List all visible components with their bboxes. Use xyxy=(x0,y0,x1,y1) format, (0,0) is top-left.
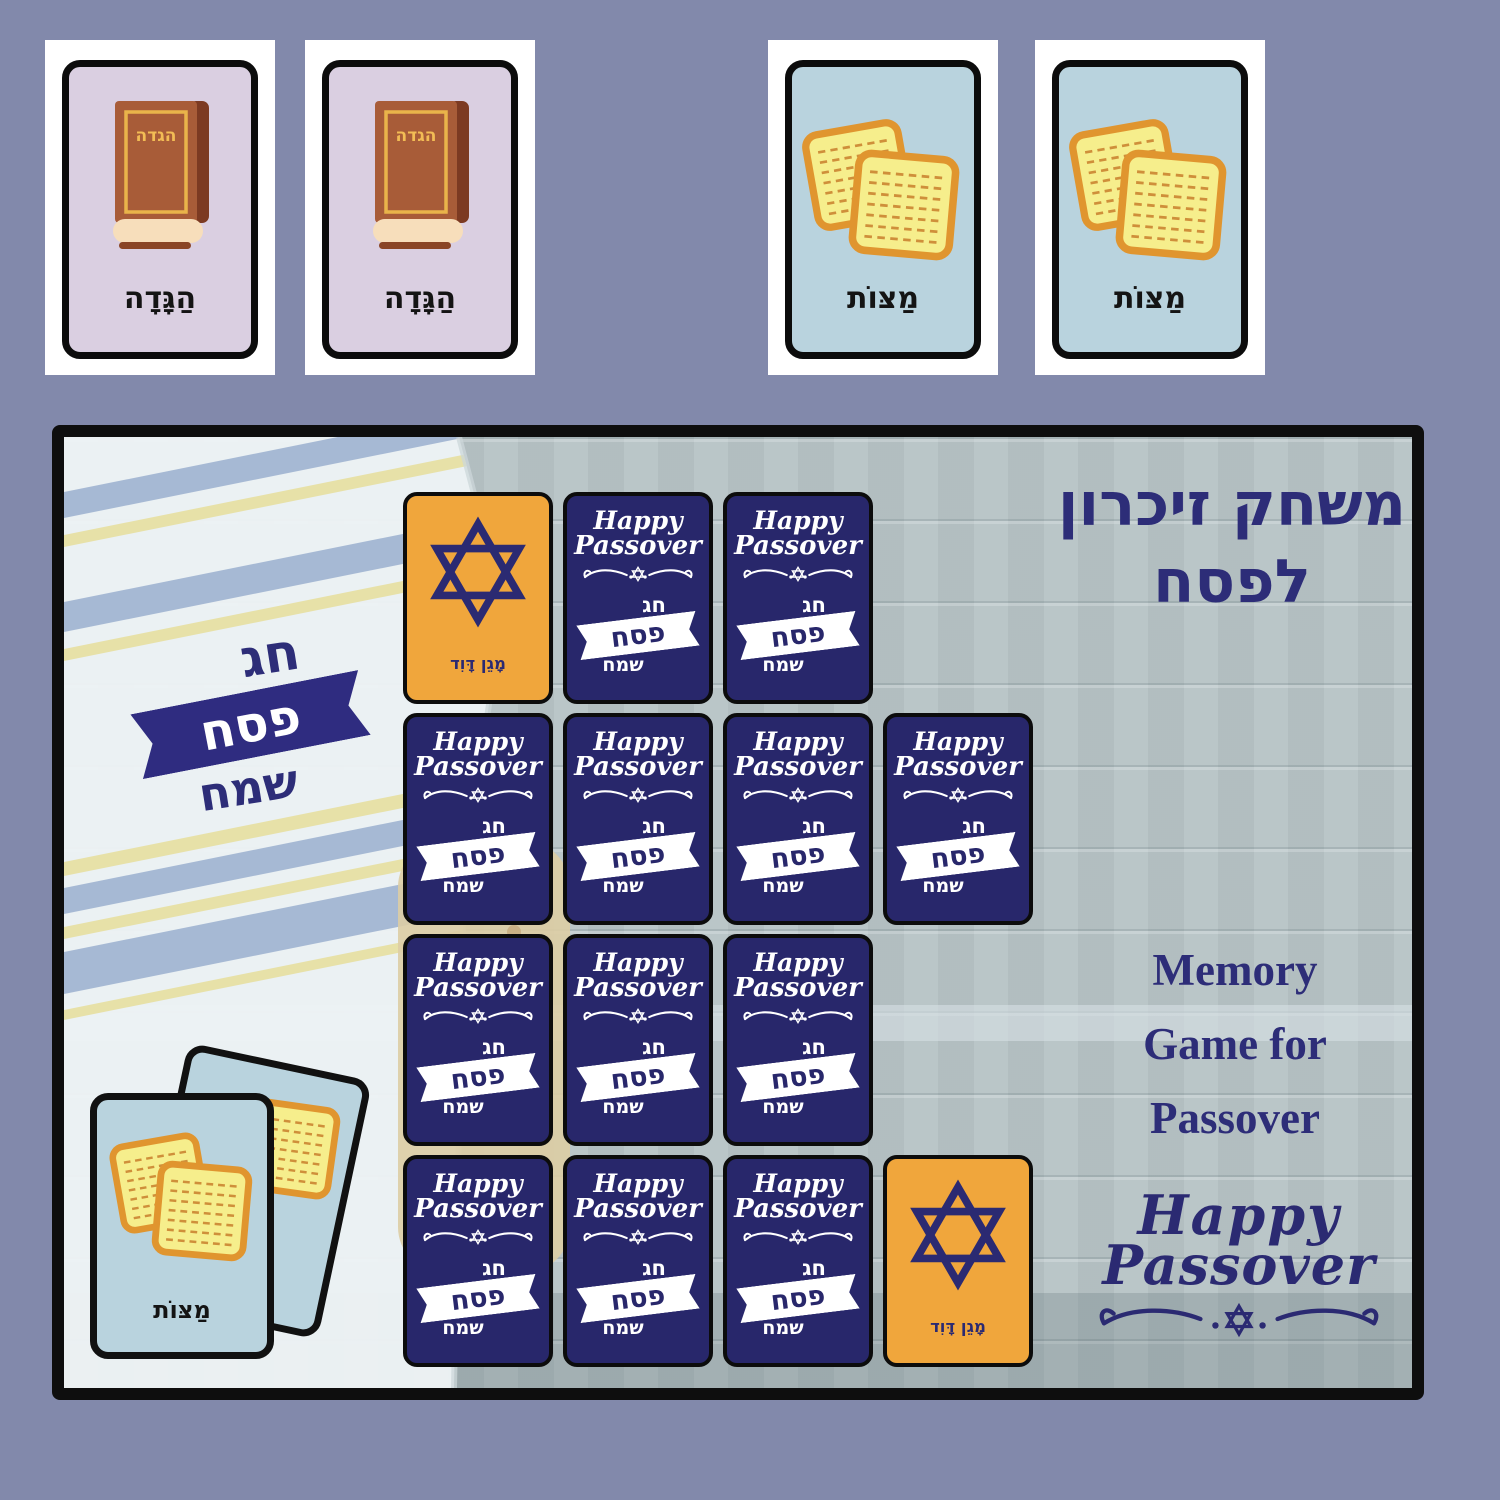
empty-grid-slot xyxy=(883,492,1033,704)
card-back-ribbon: פסח xyxy=(416,1053,539,1102)
card-back-sameach-text: שמח xyxy=(442,1317,483,1339)
memory-card-face-down[interactable]: Happy Passover חג פסח שמח xyxy=(723,492,873,704)
stack-card-label: מַצּוֹת xyxy=(97,1296,267,1324)
card-back-ribbon: פסח xyxy=(736,611,859,660)
memory-card-face-down[interactable]: Happy Passover חג פסח שמח xyxy=(403,713,553,925)
memory-card-magen-david[interactable]: מָגֵן דָּוִד xyxy=(403,492,553,704)
memory-card-face-down[interactable]: Happy Passover חג פסח שמח xyxy=(723,934,873,1146)
flourish-star-icon xyxy=(582,563,694,585)
logo-passover-text: Passover xyxy=(1074,1233,1404,1297)
card-back-chag-text: חג xyxy=(482,1035,506,1059)
card-back-happy-text: Happy xyxy=(913,729,1002,754)
card-back-passover-text: Passover xyxy=(734,754,862,781)
card-back-sameach-text: שמח xyxy=(762,1317,803,1339)
card-back-pesach-text: פסח xyxy=(449,1059,507,1096)
card-back-chag-text: חג xyxy=(482,1256,506,1280)
card-back-sameach-text: שמח xyxy=(762,654,803,676)
card-back-happy-text: Happy xyxy=(753,729,842,754)
card-back-passover-text: Passover xyxy=(894,754,1022,781)
card-back-ribbon: פסח xyxy=(576,611,699,660)
matzah-icons xyxy=(1059,121,1241,281)
flourish-star-icon xyxy=(742,1226,854,1248)
card-back-passover-text: Passover xyxy=(734,1196,862,1223)
card-back-ribbon: פסח xyxy=(896,832,1019,881)
card-back-pesach-text: פסח xyxy=(769,617,827,654)
flourish-star-icon xyxy=(422,1005,534,1027)
card-back-pesach-text: פסח xyxy=(609,838,667,875)
flourish-star-icon xyxy=(582,1226,694,1248)
haggadah-book-icon: הגדה xyxy=(104,93,216,253)
memory-game-text: Memory Game for Passover xyxy=(1060,933,1410,1155)
card-back-sameach-text: שמח xyxy=(602,1317,643,1339)
card-back-pesach-text: פסח xyxy=(609,1280,667,1317)
matzot-card-label: מַצּוֹת xyxy=(1059,281,1241,316)
card-back-chag-text: חג xyxy=(642,1035,666,1059)
flourish-star-icon xyxy=(422,1226,534,1248)
card-back-passover-text: Passover xyxy=(414,1196,542,1223)
memory-card-face-down[interactable]: Happy Passover חג פסח שמח xyxy=(563,934,713,1146)
flourish-star-icon xyxy=(742,563,854,585)
board-title-hebrew: משחק זיכרון לפסח xyxy=(1057,467,1407,621)
magen-david-label: מָגֵן דָּוִד xyxy=(450,654,506,673)
card-back-happy-text: Happy xyxy=(433,729,522,754)
card-back-happy-text: Happy xyxy=(753,508,842,533)
card-back-happy-text: Happy xyxy=(433,950,522,975)
matzah-icon xyxy=(149,1158,255,1264)
card-back-ribbon: פסח xyxy=(416,832,539,881)
card-back-ribbon: פסח xyxy=(576,1274,699,1323)
book-cover-text: הגדה xyxy=(396,126,437,146)
card-back-sameach-text: שמח xyxy=(602,654,643,676)
matzot-card-1[interactable]: מַצּוֹת xyxy=(785,60,981,359)
card-back-chag-text: חג xyxy=(642,1256,666,1280)
flourish-star-icon xyxy=(582,784,694,806)
card-back-pesach-text: פסח xyxy=(449,1280,507,1317)
flourish-star-icon xyxy=(1089,1297,1389,1341)
card-back-ribbon: פסח xyxy=(736,1274,859,1323)
card-back-pesach-text: פסח xyxy=(609,617,667,654)
book-cover-text: הגדה xyxy=(136,126,177,146)
stack-card-front[interactable]: מַצּוֹת xyxy=(90,1093,274,1359)
card-back-happy-text: Happy xyxy=(433,1171,522,1196)
empty-grid-slot xyxy=(883,934,1033,1146)
print-sheet-4: מַצּוֹת xyxy=(1035,40,1265,375)
memory-card-face-down[interactable]: Happy Passover חג פסח שמח xyxy=(883,713,1033,925)
print-sheet-1: הגדה הַגָּדָה xyxy=(45,40,275,375)
memory-card-face-down[interactable]: Happy Passover חג פסח שמח xyxy=(723,713,873,925)
flourish-star-icon xyxy=(582,1005,694,1027)
badge-pesach-text: פסח xyxy=(195,686,305,762)
card-back-ribbon: פסח xyxy=(736,832,859,881)
card-back-happy-text: Happy xyxy=(753,1171,842,1196)
card-back-chag-text: חג xyxy=(802,593,826,617)
card-back-chag-text: חג xyxy=(962,814,986,838)
card-back-happy-text: Happy xyxy=(593,508,682,533)
title-line-2: לפסח xyxy=(1057,544,1407,621)
card-back-passover-text: Passover xyxy=(574,754,702,781)
memory-card-face-down[interactable]: Happy Passover חג פסח שמח xyxy=(563,1155,713,1367)
card-back-happy-text: Happy xyxy=(753,950,842,975)
happy-passover-logo: Happy Passover xyxy=(1074,1183,1404,1345)
card-back-sameach-text: שמח xyxy=(922,875,963,897)
chag-pesach-sameach-badge: חג פסח שמח xyxy=(121,611,387,830)
memory-line-1: Memory xyxy=(1060,933,1410,1007)
memory-card-face-down[interactable]: Happy Passover חג פסח שמח xyxy=(403,1155,553,1367)
page-background: הגדה הַגָּדָה הגדה הַגָּדָה xyxy=(0,0,1500,1500)
star-of-david-icon xyxy=(902,1179,1014,1291)
haggadah-card-2[interactable]: הגדה הַגָּדָה xyxy=(322,60,518,359)
card-grid: מָגֵן דָּוִד Happy Passover חג פסח שמח H… xyxy=(403,492,1033,1367)
game-board: חג פסח שמח משחק זיכרון לפסח מָגֵן דָּוִד… xyxy=(52,425,1424,1400)
card-back-passover-text: Passover xyxy=(414,754,542,781)
haggadah-book-icon: הגדה xyxy=(364,93,476,253)
card-back-chag-text: חג xyxy=(642,593,666,617)
matzot-card-label: מַצּוֹת xyxy=(792,281,974,316)
card-back-happy-text: Happy xyxy=(593,950,682,975)
matzah-icons xyxy=(792,121,974,281)
card-back-chag-text: חג xyxy=(802,1256,826,1280)
flourish-star-icon xyxy=(742,784,854,806)
magen-david-label: מָגֵן דָּוִד xyxy=(930,1317,986,1336)
card-back-ribbon: פסח xyxy=(576,1053,699,1102)
card-back-chag-text: חג xyxy=(802,1035,826,1059)
card-back-happy-text: Happy xyxy=(593,729,682,754)
card-back-sameach-text: שמח xyxy=(602,1096,643,1118)
matzah-icon xyxy=(845,146,962,263)
haggadah-card-label: הַגָּדָה xyxy=(69,281,251,316)
card-back-pesach-text: פסח xyxy=(769,1280,827,1317)
card-back-chag-text: חג xyxy=(482,814,506,838)
haggadah-card-1[interactable]: הגדה הַגָּדָה xyxy=(62,60,258,359)
memory-card-face-down[interactable]: Happy Passover חג פסח שמח xyxy=(723,1155,873,1367)
card-back-chag-text: חג xyxy=(642,814,666,838)
flourish-star-icon xyxy=(742,1005,854,1027)
flourish-star-icon xyxy=(902,784,1014,806)
card-back-passover-text: Passover xyxy=(574,533,702,560)
memory-line-3: Passover xyxy=(1060,1081,1410,1155)
card-back-happy-text: Happy xyxy=(593,1171,682,1196)
matzot-card-2[interactable]: מַצּוֹת xyxy=(1052,60,1248,359)
print-sheet-3: מַצּוֹת xyxy=(768,40,998,375)
matzah-icon xyxy=(1112,146,1229,263)
card-back-pesach-text: פסח xyxy=(609,1059,667,1096)
card-back-sameach-text: שמח xyxy=(602,875,643,897)
flourish-star-icon xyxy=(422,784,534,806)
title-line-1: משחק זיכרון xyxy=(1057,467,1407,544)
card-back-sameach-text: שמח xyxy=(442,1096,483,1118)
card-back-ribbon: פסח xyxy=(416,1274,539,1323)
star-of-david-icon xyxy=(422,516,534,628)
card-back-passover-text: Passover xyxy=(414,975,542,1002)
card-back-sameach-text: שמח xyxy=(442,875,483,897)
card-back-pesach-text: פסח xyxy=(769,838,827,875)
memory-card-face-down[interactable]: Happy Passover חג פסח שמח xyxy=(563,713,713,925)
card-back-pesach-text: פסח xyxy=(769,1059,827,1096)
memory-card-face-down[interactable]: Happy Passover חג פסח שמח xyxy=(403,934,553,1146)
card-back-sameach-text: שמח xyxy=(762,1096,803,1118)
card-back-chag-text: חג xyxy=(802,814,826,838)
card-back-pesach-text: פסח xyxy=(449,838,507,875)
card-back-passover-text: Passover xyxy=(734,975,862,1002)
card-back-passover-text: Passover xyxy=(574,1196,702,1223)
card-back-ribbon: פסח xyxy=(736,1053,859,1102)
memory-line-2: Game for xyxy=(1060,1007,1410,1081)
card-back-ribbon: פסח xyxy=(576,832,699,881)
card-back-passover-text: Passover xyxy=(734,533,862,560)
card-back-sameach-text: שמח xyxy=(762,875,803,897)
memory-card-magen-david[interactable]: מָגֵן דָּוִד xyxy=(883,1155,1033,1367)
card-back-pesach-text: פסח xyxy=(929,838,987,875)
print-sheet-2: הגדה הַגָּדָה xyxy=(305,40,535,375)
memory-card-face-down[interactable]: Happy Passover חג פסח שמח xyxy=(563,492,713,704)
card-back-passover-text: Passover xyxy=(574,975,702,1002)
haggadah-card-label: הַגָּדָה xyxy=(329,281,511,316)
